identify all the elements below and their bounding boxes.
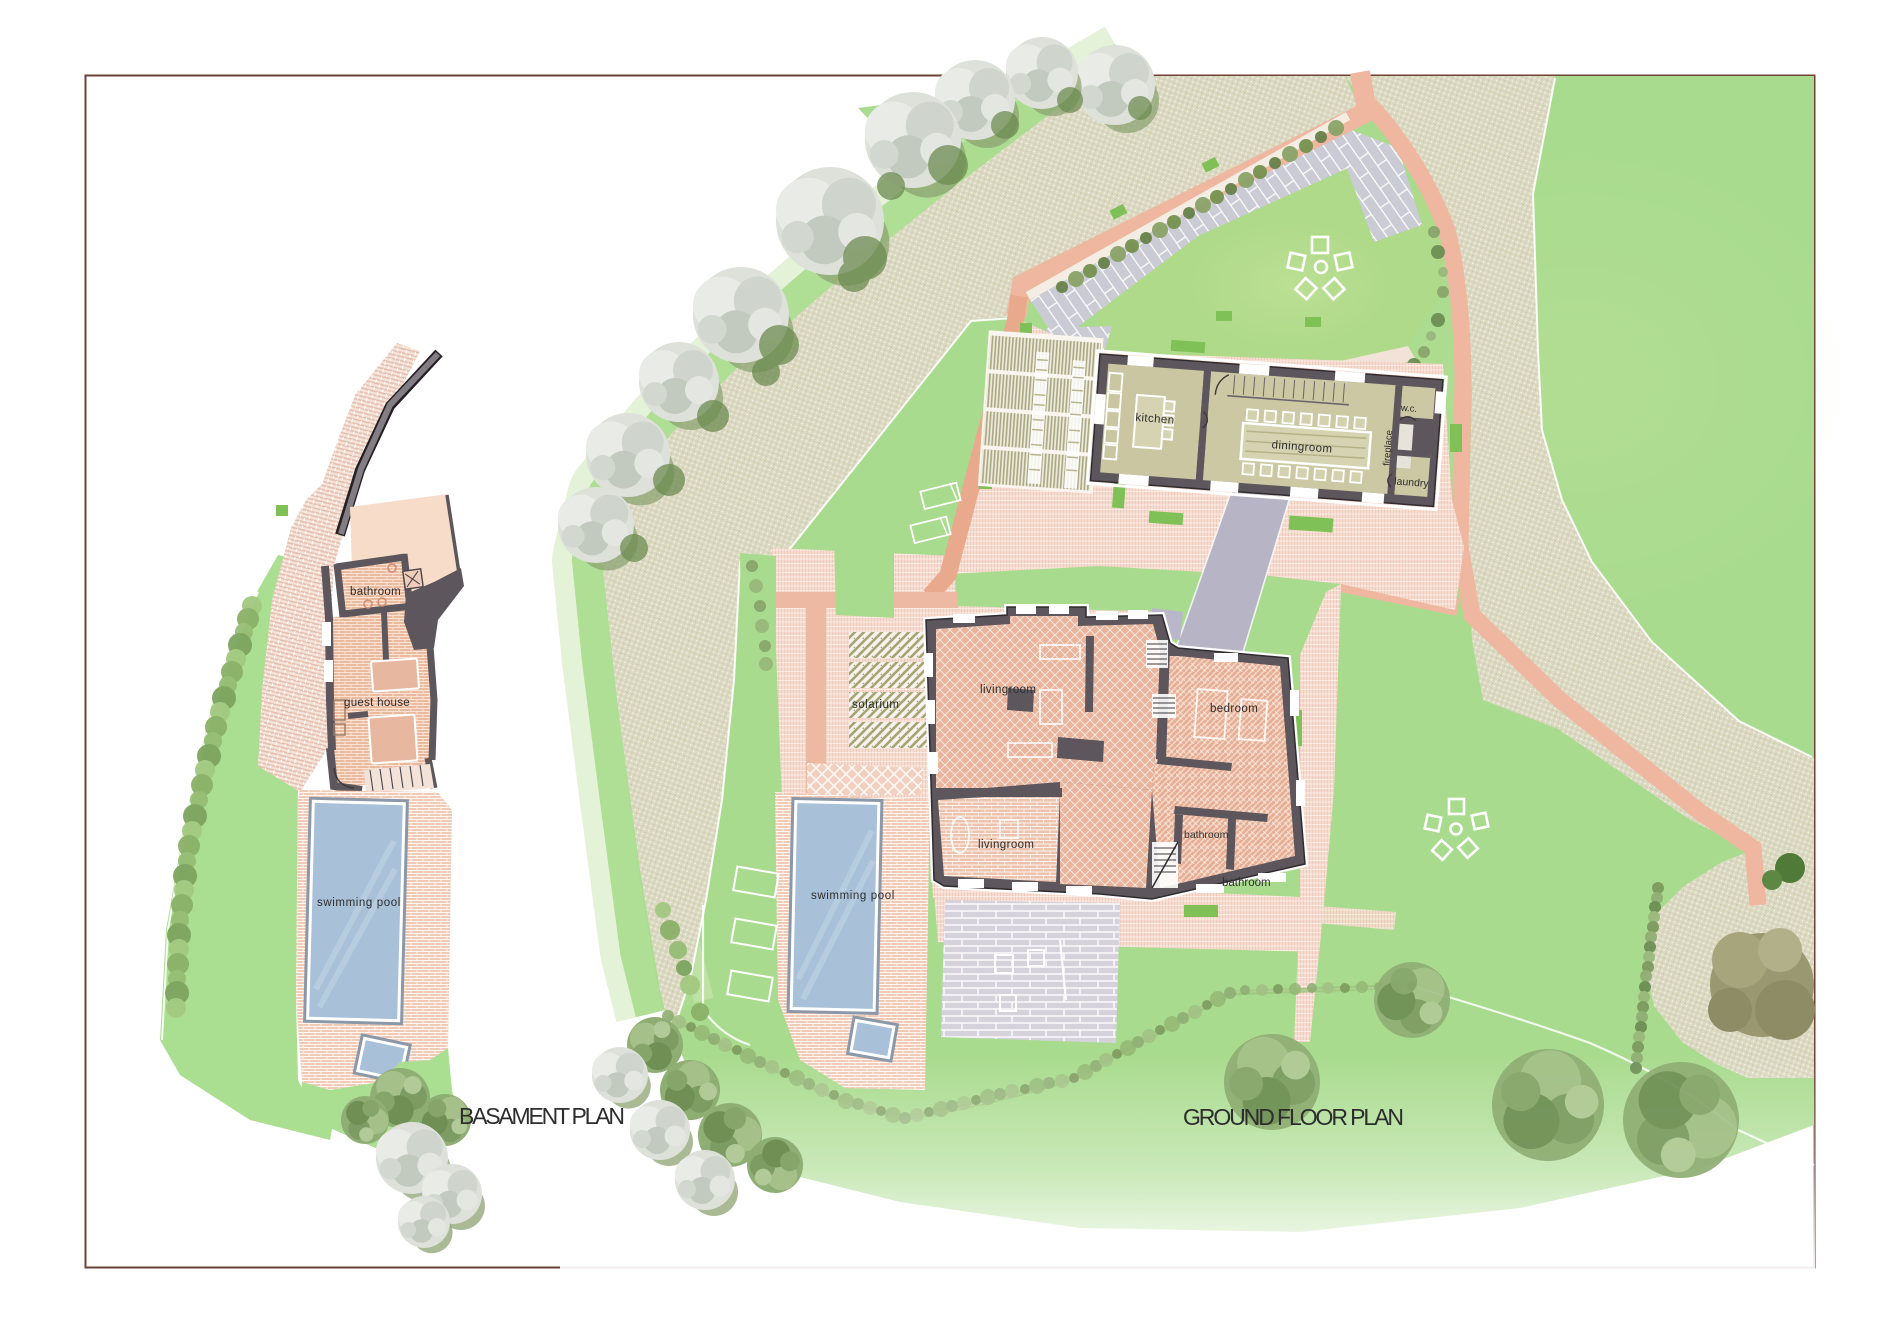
- svg-text:bathroom: bathroom: [1184, 829, 1229, 841]
- svg-text:bathroom: bathroom: [1222, 877, 1271, 889]
- svg-text:swimming pool: swimming pool: [317, 897, 401, 909]
- svg-text:swimming pool: swimming pool: [811, 890, 895, 902]
- svg-text:livingroom: livingroom: [980, 684, 1036, 696]
- svg-text:bedroom: bedroom: [1210, 703, 1258, 715]
- svg-text:w.c.: w.c.: [1399, 403, 1417, 415]
- svg-text:solarium: solarium: [852, 699, 899, 711]
- svg-text:BASAMENT PLAN: BASAMENT PLAN: [459, 1103, 627, 1129]
- svg-text:bathroom: bathroom: [350, 586, 401, 598]
- svg-text:GROUND FLOOR PLAN: GROUND FLOOR PLAN: [1183, 1104, 1406, 1130]
- svg-text:guest house: guest house: [344, 697, 410, 709]
- svg-text:livingroom: livingroom: [978, 839, 1034, 851]
